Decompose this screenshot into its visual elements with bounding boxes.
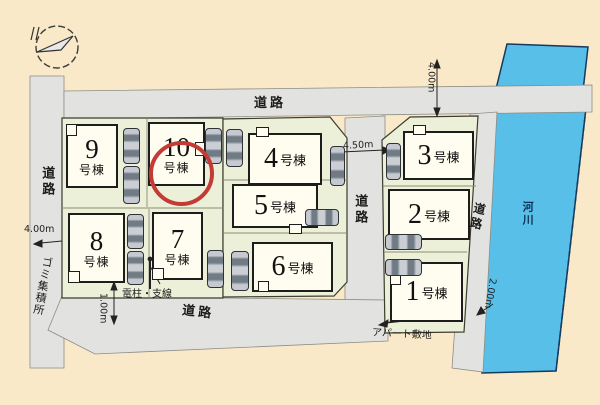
car-icon — [386, 143, 401, 180]
building-6[interactable]: 6号棟 — [252, 242, 333, 292]
river-main-segment — [482, 108, 586, 373]
building-2[interactable]: 2号棟 — [388, 189, 470, 240]
entrance-mark — [289, 224, 302, 234]
building-9-label: 9号棟 — [79, 136, 105, 176]
car-icon — [385, 234, 422, 250]
entrance-mark — [66, 124, 77, 136]
building-number: 3 — [417, 140, 431, 171]
car-icon — [226, 129, 243, 167]
car-icon — [305, 209, 339, 226]
car-icon — [123, 166, 140, 204]
entrance-mark — [256, 127, 269, 137]
building-4[interactable]: 4号棟 — [248, 133, 322, 185]
car-icon — [127, 214, 144, 249]
building-8[interactable]: 8号棟 — [68, 213, 125, 283]
car-icon — [127, 251, 144, 285]
river-label: 河川 — [521, 201, 533, 227]
building-suffix: 号棟 — [421, 286, 447, 301]
building-number: 5 — [254, 190, 268, 221]
building-suffix: 号棟 — [433, 150, 459, 165]
dim-center-road: 4.50m — [343, 140, 374, 152]
building-number: 2 — [408, 199, 422, 230]
north-arrow-icon — [31, 26, 78, 68]
entrance-mark — [413, 125, 426, 135]
building-5-label: 5号棟 — [254, 192, 296, 220]
building-suffix: 号棟 — [164, 254, 190, 266]
building-3[interactable]: 3号棟 — [403, 131, 474, 180]
river-upper-segment — [496, 44, 588, 91]
building-6-label: 6号棟 — [271, 253, 313, 281]
building-7-label: 7号棟 — [164, 226, 190, 266]
entrance-mark — [152, 268, 164, 280]
dim-pole-offset: 1.00m — [97, 293, 107, 323]
building-suffix: 号棟 — [280, 153, 306, 168]
building-number: 9 — [79, 136, 105, 163]
building-1-label: 1号棟 — [405, 278, 447, 306]
building-number: 6 — [271, 251, 285, 282]
car-icon — [385, 259, 422, 276]
car-icon — [123, 128, 140, 164]
site-plan: 9号棟 10号棟 4号棟 3号棟 5号棟 2号棟 8号棟 7号棟 6号棟 1号棟 — [0, 0, 600, 405]
entrance-mark — [68, 271, 80, 283]
building-7[interactable]: 7号棟 — [152, 212, 203, 280]
car-icon — [231, 251, 249, 291]
building-number: 8 — [83, 228, 109, 255]
building-suffix: 号棟 — [270, 200, 296, 215]
building-number: 1 — [405, 276, 419, 307]
road-label-left: 道路 — [39, 166, 53, 198]
car-icon — [207, 250, 224, 288]
dim-top-right-road: 4.00m — [425, 62, 435, 92]
dim-left-road: 4.00m — [24, 225, 54, 235]
building-suffix: 号棟 — [287, 261, 313, 276]
building-suffix: 号棟 — [424, 209, 450, 224]
road-label-top: 道路 — [254, 97, 286, 111]
building-8-label: 8号棟 — [83, 228, 109, 268]
building-4-label: 4号棟 — [264, 145, 306, 173]
building-2-label: 2号棟 — [408, 201, 450, 229]
selected-building-ring — [149, 141, 214, 206]
building-number: 4 — [264, 143, 278, 174]
entrance-mark — [258, 281, 269, 292]
building-suffix: 号棟 — [83, 256, 109, 268]
utility-pole-label: 電柱・支線 — [122, 289, 172, 300]
road-label-center: 道路 — [352, 194, 366, 226]
building-9[interactable]: 9号棟 — [66, 124, 118, 188]
building-number: 7 — [164, 226, 190, 253]
building-3-label: 3号棟 — [417, 142, 459, 170]
building-suffix: 号棟 — [79, 164, 105, 176]
